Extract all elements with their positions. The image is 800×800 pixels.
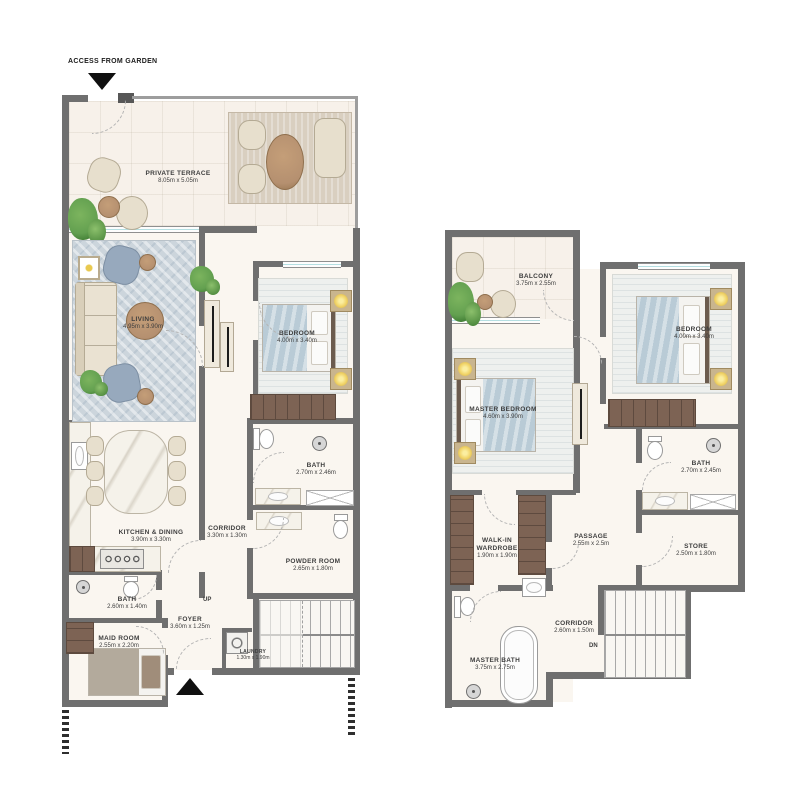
linen-closet: [690, 494, 736, 510]
sofa-back: [76, 283, 85, 375]
room-label-corridor: CORRIDOR3.30m x 1.30m: [207, 525, 247, 541]
side-table: [139, 254, 156, 271]
terrace-chair: [116, 196, 148, 230]
ceiling-light: [710, 368, 732, 390]
bedroom-window: [283, 261, 341, 268]
wall: [62, 95, 88, 102]
room-label-walk-in-wardrobe: WALK-IN WARDROBE1.90m x 1.90m: [471, 537, 523, 561]
dining-chair: [168, 436, 186, 456]
dining-chair: [86, 461, 104, 481]
room-label-store: STORE2.50m x 1.80m: [676, 543, 716, 559]
wall: [546, 672, 553, 707]
stairs-down-label: DN: [589, 643, 598, 649]
bed-headboard: [457, 379, 461, 451]
wall: [156, 600, 162, 618]
balcony-chair: [490, 290, 516, 318]
shower-head-icon: [312, 436, 327, 451]
bath-sink-counter: [642, 492, 688, 510]
sink-basin: [75, 446, 84, 466]
maid-bed: [88, 648, 166, 696]
wall: [600, 262, 606, 337]
vanity-sink: [522, 578, 546, 597]
sliding-wardrobe-panel: [204, 300, 220, 368]
room-label-living: LIVING4.95m x 3.90m: [123, 316, 163, 332]
terrace-side-table: [98, 196, 120, 218]
panel-track-icon: [212, 306, 214, 361]
wall: [62, 95, 69, 707]
stairs-up-label: UP: [203, 597, 211, 603]
wall: [212, 668, 360, 675]
wall: [636, 565, 642, 585]
maid-wardrobe: [66, 622, 94, 654]
shower-head-icon: [76, 580, 90, 594]
room-label-master-bath: MASTER BATH3.75m x 2.75m: [470, 657, 520, 673]
sink-basin: [655, 496, 675, 506]
up-text: UP: [203, 597, 211, 603]
wall: [546, 568, 552, 585]
walk-in-wardrobe-unit: [518, 495, 546, 575]
room-label-private-terrace: PRIVATE TERRACE8.05m x 5.05m: [146, 170, 211, 186]
sliding-wardrobe-panel: [220, 322, 234, 372]
garden-entry-arrow-icon: [88, 73, 116, 90]
bed-pillow: [683, 343, 700, 375]
wall: [247, 593, 360, 599]
living-plant: [80, 370, 102, 394]
wall: [636, 429, 642, 463]
bedroom-wardrobe: [608, 399, 696, 427]
wall: [445, 585, 470, 591]
entrance-arrow-icon: [176, 678, 204, 695]
shower-head-icon: [466, 684, 481, 699]
panel-track-icon: [227, 327, 229, 367]
sliding-wardrobe-panel: [572, 383, 588, 445]
room-label-bedroom: BEDROOM4.00m x 3.40m: [277, 330, 317, 346]
ceiling-light: [330, 290, 352, 312]
ceiling-light: [330, 368, 352, 390]
room-label-maid-bath: BATH2.60m x 1.40m: [107, 596, 147, 612]
dining-table: [104, 430, 168, 514]
wall: [341, 261, 360, 267]
wall: [62, 700, 168, 707]
wall: [199, 366, 205, 422]
wall: [573, 443, 580, 493]
section-hatch-mark: [62, 710, 69, 754]
terrace-fence: [355, 96, 358, 230]
toilet-bowl: [259, 429, 274, 449]
terrace-fence: [132, 96, 358, 99]
dining-chair: [86, 436, 104, 456]
room-label-passage: PASSAGE2.55m x 2.5m: [573, 533, 609, 549]
room-label-balcony: BALCONY3.75m x 2.55m: [516, 273, 556, 289]
sink-basin: [526, 582, 542, 593]
wall: [156, 570, 162, 590]
bed-pillow: [141, 655, 161, 689]
panel-track-icon: [580, 389, 582, 439]
bath-sink-counter: [255, 488, 301, 505]
living-plant: [190, 266, 214, 292]
terrace-table: [266, 134, 304, 190]
kitchen-cabinet: [69, 546, 95, 572]
ceiling-light: [710, 288, 732, 310]
bed-blanket: [637, 297, 679, 383]
stove: [100, 549, 144, 569]
dining-chair: [168, 486, 186, 506]
wall: [445, 230, 580, 237]
wall: [600, 358, 606, 404]
toilet-bowl: [333, 520, 348, 539]
section-hatch-mark: [348, 678, 355, 738]
access-from-garden-label: ACCESS FROM GARDEN: [68, 58, 157, 65]
balcony-plant: [448, 282, 474, 322]
wall: [573, 230, 580, 323]
toilet-bowl: [647, 441, 663, 460]
sofa: [75, 282, 117, 376]
access-from-garden-text: ACCESS FROM GARDEN: [68, 58, 157, 65]
floorplan-canvas: ACCESS FROM GARDEN: [0, 0, 800, 800]
balcony-chair: [456, 252, 484, 282]
room-label-foyer: FOYER3.60m x 1.25m: [170, 616, 210, 632]
dn-text: DN: [589, 643, 598, 649]
bed-headboard: [331, 305, 335, 371]
ceiling-light: [454, 442, 476, 464]
sink-basin: [268, 492, 288, 501]
bedroom-window: [638, 263, 710, 270]
bed-blanket: [89, 649, 139, 695]
terrace-chair: [238, 164, 266, 194]
room-label-bedroom: BEDROOM4.00m x 3.40m: [674, 326, 714, 342]
side-table: [137, 388, 154, 405]
wall: [162, 618, 168, 628]
shower-head-icon: [706, 438, 721, 453]
room-label-bath: BATH2.70m x 2.45m: [681, 460, 721, 476]
wall: [199, 422, 205, 540]
wall: [636, 515, 642, 533]
wall: [546, 490, 552, 542]
wall: [247, 548, 253, 598]
staircase: [259, 600, 355, 668]
terrace-chair: [238, 120, 266, 150]
terrace-lounge-chair: [314, 118, 346, 178]
linen-closet: [306, 490, 354, 506]
room-label-laundry: LAUNDRY1.30m x 1.90m: [236, 649, 269, 662]
room-label-bath: BATH2.70m x 2.46m: [296, 462, 336, 478]
room-label-powder-room: POWDER ROOM2.65m x 1.80m: [286, 558, 341, 574]
room-label-kitchen-dining: KITCHEN & DINING3.90m x 3.30m: [119, 529, 184, 545]
wall: [199, 572, 205, 598]
room-label-maid-room: MAID ROOM2.55m x 2.20m: [98, 635, 139, 651]
stair-landing-divider: [605, 634, 685, 636]
wall: [168, 668, 174, 675]
dining-chair: [86, 486, 104, 506]
dining-chair: [168, 461, 186, 481]
room-label-master-bedroom: MASTER BEDROOM4.60m x 3.90m: [469, 406, 536, 422]
room-label-corridor: CORRIDOR2.60m x 1.50m: [554, 620, 594, 636]
staircase: [604, 590, 686, 678]
living-console: [78, 256, 100, 280]
wall: [199, 226, 257, 233]
wall: [636, 510, 744, 515]
floorplan-page: { "colors": { "wall": "#6f6f6f", "wall-d…: [0, 0, 800, 800]
terrace-plant: [68, 198, 98, 240]
ceiling-light: [454, 358, 476, 380]
bedroom-wardrobe: [250, 394, 336, 420]
wall: [445, 700, 553, 707]
